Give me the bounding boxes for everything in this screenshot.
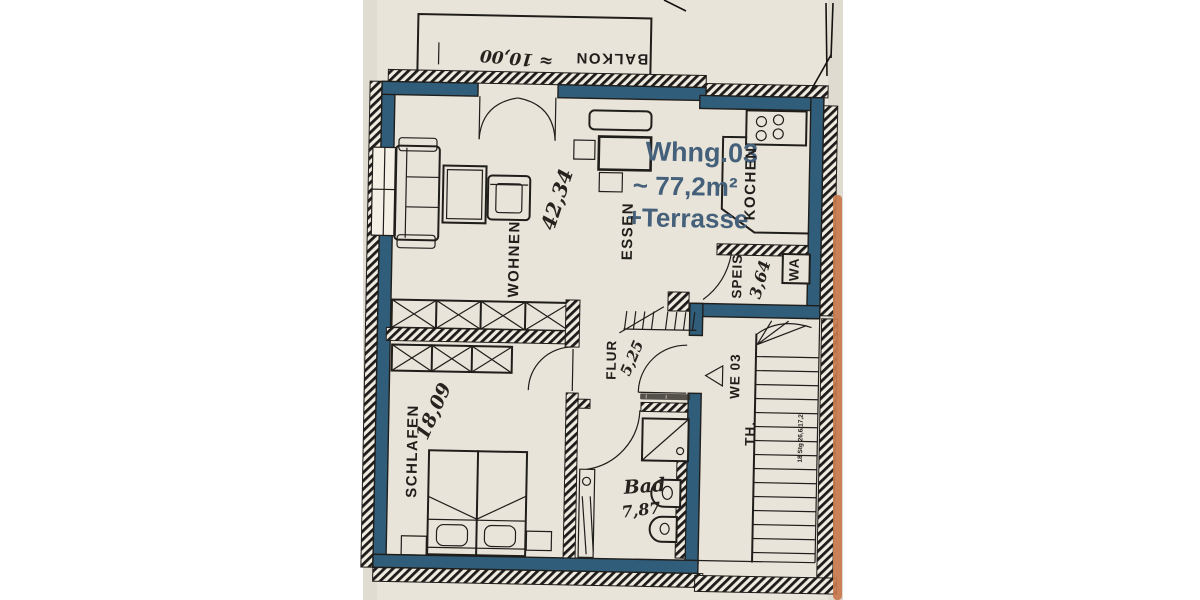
floor-plan-svg: BALKON ≈ 10,00 <box>0 0 1200 600</box>
floor-plan-screenshot: BALKON ≈ 10,00 <box>0 0 1200 600</box>
stairwell-unit-door-label: WE 03 <box>727 353 743 399</box>
unit-terrace: +Terrasse <box>626 202 748 234</box>
room-label-speis: SPEIS <box>729 254 745 299</box>
window-symbol <box>371 147 397 235</box>
bathroom-wall-stub <box>578 399 590 408</box>
bathroom-wall-left <box>563 393 578 558</box>
shower-symbol <box>642 418 689 461</box>
stairwell-hall-label: TH. <box>742 421 757 446</box>
room-label-bad: Bad <box>622 474 666 499</box>
room-label-kochen: KOCHEN <box>742 146 760 220</box>
room-label-flur: FLUR <box>603 340 619 380</box>
balcony-label: BALKON <box>575 49 648 67</box>
wall-pillar <box>668 292 689 311</box>
bidet-symbol <box>649 517 676 543</box>
room-label-wohnen: WOHNEN <box>505 220 523 298</box>
unit-name: Whng.03 <box>645 136 758 168</box>
bedroom-wall-pillar <box>565 300 580 347</box>
entry-door-stamp <box>640 393 690 400</box>
bathroom-wall-top <box>641 402 688 412</box>
unit-area: ~ 77,2m² <box>633 170 739 202</box>
stair-note: 18 Stg 26,6/17,2 <box>797 414 805 463</box>
room-label-essen: ESSEN <box>619 202 637 261</box>
marker-stripe <box>833 195 842 600</box>
washer-label: WA <box>786 257 801 281</box>
